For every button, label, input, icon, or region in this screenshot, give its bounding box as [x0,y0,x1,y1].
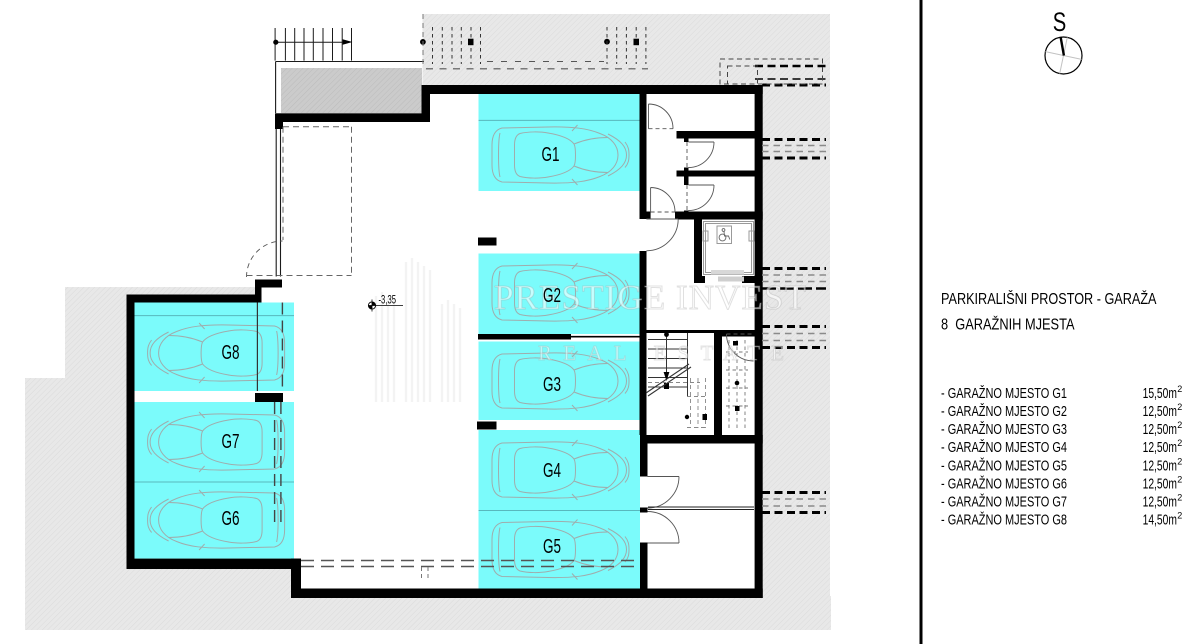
svg-text:2: 2 [1177,384,1182,394]
svg-text:15,50m: 15,50m [1143,385,1177,402]
svg-text:12,50m: 12,50m [1143,403,1177,420]
svg-text:2: 2 [1177,456,1182,466]
svg-text:G6: G6 [222,508,240,530]
svg-text:- GARAŽNO MJESTO G8: - GARAŽNO MJESTO G8 [941,512,1067,529]
svg-text:- GARAŽNO MJESTO G4: - GARAŽNO MJESTO G4 [941,439,1067,456]
svg-text:G3: G3 [543,374,561,396]
svg-text:PARKIRALIŠNI PROSTOR - GARAŽA: PARKIRALIŠNI PROSTOR - GARAŽA [941,291,1157,308]
svg-text:-3,35: -3,35 [379,295,397,307]
svg-text:G1: G1 [542,144,560,166]
svg-text:12,50m: 12,50m [1143,439,1177,456]
svg-text:14,50m: 14,50m [1143,512,1177,529]
svg-text:G7: G7 [222,431,240,453]
svg-text:8 GARAŽNIH MJESTA: 8 GARAŽNIH MJESTA [941,317,1075,334]
svg-text:12,50m: 12,50m [1143,476,1177,493]
svg-text:PRESTIGE INVEST: PRESTIGE INVEST [494,278,812,317]
svg-text:G8: G8 [222,342,240,364]
svg-text:S: S [1053,7,1067,37]
svg-text:12,50m: 12,50m [1143,494,1177,511]
svg-text:12,50m: 12,50m [1143,457,1177,474]
svg-text:- GARAŽNO MJESTO G2: - GARAŽNO MJESTO G2 [941,403,1067,420]
svg-text:G4: G4 [543,460,561,482]
svg-text:- GARAŽNO MJESTO G5: - GARAŽNO MJESTO G5 [941,457,1067,474]
svg-text:- GARAŽNO MJESTO G3: - GARAŽNO MJESTO G3 [941,421,1067,438]
svg-text:12,50m: 12,50m [1143,421,1177,438]
svg-text:2: 2 [1177,420,1182,430]
svg-text:G5: G5 [543,536,561,558]
svg-text:G2: G2 [543,285,561,307]
svg-text:- GARAŽNO MJESTO G7: - GARAŽNO MJESTO G7 [941,494,1067,511]
svg-text:2: 2 [1177,475,1182,485]
svg-text:2: 2 [1177,493,1182,503]
svg-text:- GARAŽNO MJESTO G1: - GARAŽNO MJESTO G1 [941,385,1067,402]
svg-text:REAL ESTATE: REAL ESTATE [538,341,798,365]
svg-text:2: 2 [1177,402,1182,412]
svg-text:2: 2 [1177,438,1182,448]
svg-text:2: 2 [1177,511,1182,521]
svg-text:- GARAŽNO MJESTO G6: - GARAŽNO MJESTO G6 [941,476,1067,493]
